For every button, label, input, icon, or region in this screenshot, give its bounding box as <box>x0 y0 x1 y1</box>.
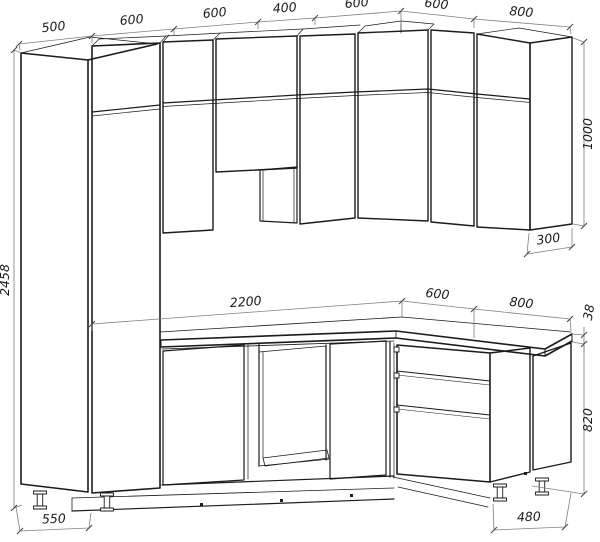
dim-width-500: 500 <box>41 18 66 36</box>
leg-icon <box>101 493 114 511</box>
tall-cabinet-500 <box>21 37 157 492</box>
dim-width-600-4: 600 <box>424 0 449 12</box>
dim-chain-worktop <box>92 301 571 338</box>
dim-worktop-600: 600 <box>425 285 450 303</box>
leg-icon <box>34 491 47 509</box>
tall-cabinet-600 <box>92 36 166 493</box>
wall-cabinet-door-split <box>163 89 530 107</box>
wall-cabinets-left-run <box>163 25 360 233</box>
cabinet-legs <box>34 478 549 511</box>
dim-ticks-bottom <box>17 524 568 534</box>
dim-height-820: 820 <box>580 408 595 432</box>
kitchen-drawing-page: 500 600 600 400 600 600 800 2458 1000 30… <box>0 0 600 542</box>
dim-worktop-2200: 2200 <box>229 293 262 310</box>
cabinet-linework <box>21 21 572 511</box>
base-cabinets-left-run <box>72 341 394 511</box>
dim-width-400: 400 <box>272 0 297 16</box>
dim-width-800: 800 <box>509 3 534 20</box>
dim-worktop-800: 800 <box>509 294 534 311</box>
dim-depth-550: 550 <box>42 510 67 526</box>
corner-drawer-unit <box>393 345 530 507</box>
leg-icon <box>494 484 507 501</box>
dim-height-2458: 2458 <box>0 264 12 296</box>
wall-cabinets-right-run <box>431 28 572 230</box>
dim-ticks-wall-right <box>524 39 587 257</box>
dim-width-600-3: 600 <box>344 0 369 11</box>
dim-bottom-depths <box>16 493 571 531</box>
dim-depth-480: 480 <box>517 509 542 525</box>
corner-wall-cabinet <box>358 21 434 221</box>
dim-width-600-1: 600 <box>119 11 144 28</box>
dim-wall-right <box>527 38 584 254</box>
dim-ticks-worktop <box>89 298 573 327</box>
dim-height-1000: 1000 <box>580 118 595 150</box>
base-cabinet-right-800 <box>524 343 571 475</box>
dim-thickness-38: 38 <box>580 303 598 321</box>
kitchen-technical-drawing: 500 600 600 400 600 600 800 2458 1000 30… <box>0 0 600 542</box>
dim-depth-300: 300 <box>536 229 562 247</box>
dim-width-600-2: 600 <box>202 4 227 21</box>
dim-chain-top <box>19 11 571 50</box>
